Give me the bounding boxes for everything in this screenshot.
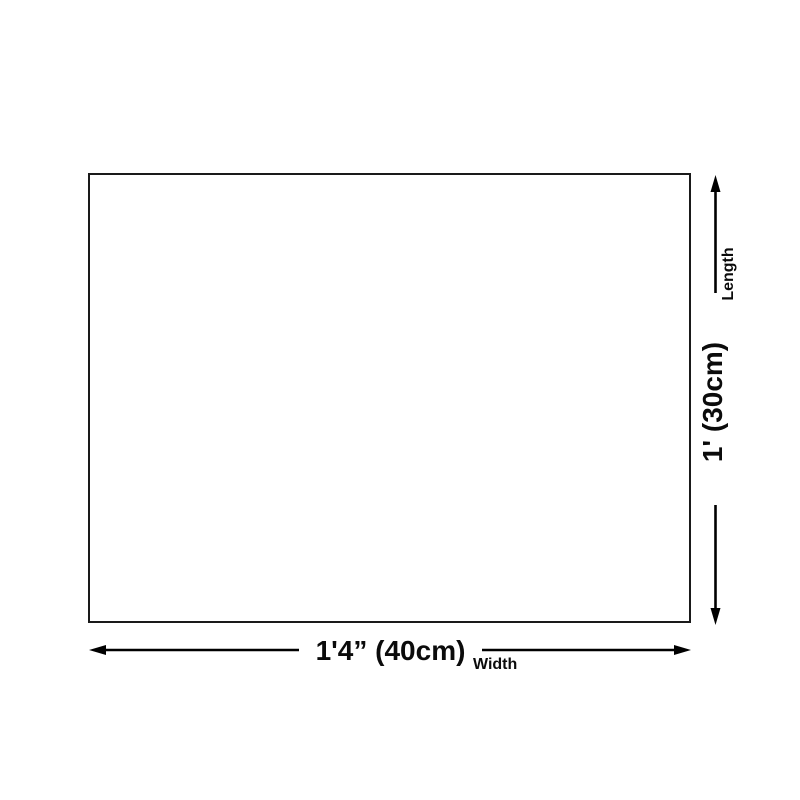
width-left-arrow-icon: [89, 644, 299, 656]
width-right-arrow-icon: [482, 644, 691, 656]
length-dimension-value: 1' (30cm): [697, 342, 729, 462]
length-down-arrow-icon: [709, 505, 722, 625]
width-dimension-value: 1'4” (40cm): [298, 637, 483, 665]
width-axis-label: Width: [473, 656, 517, 673]
product-outline-rectangle: [88, 173, 691, 623]
length-axis-label: Length: [720, 247, 738, 300]
dimension-diagram: 1'4” (40cm) Width Length 1' (30cm): [0, 0, 800, 800]
